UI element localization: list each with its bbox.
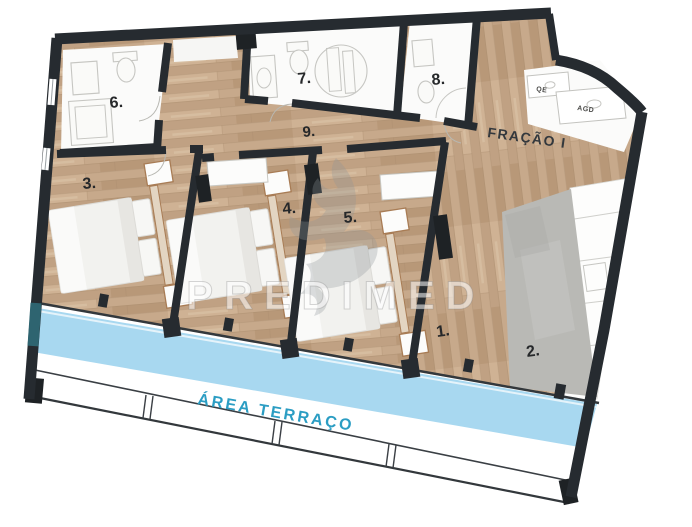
room-4-label: 4. — [282, 200, 297, 218]
accent-teal-wall-segment — [33, 303, 36, 346]
floor-plan-canvas: PREDIMED 3. 4. 5. 6. 7. 8. 9. 1. 2. FRAÇ… — [0, 0, 692, 527]
room-8-label: 8. — [431, 71, 446, 89]
room-2-label: 2. — [525, 342, 541, 361]
room-6-label: 6. — [109, 94, 124, 112]
room-7-label: 7. — [297, 70, 312, 88]
room-5-label: 5. — [343, 209, 358, 227]
watermark-text: PREDIMED — [186, 274, 485, 318]
entry-landing — [173, 36, 238, 62]
room-9-label: 9. — [302, 123, 316, 141]
wardrobe-room-5 — [380, 171, 440, 200]
wardrobe-room-4 — [207, 158, 268, 186]
room-1-label: 1. — [435, 322, 451, 341]
room-3-label: 3. — [82, 175, 97, 193]
floor-plan-drawing: PREDIMED 3. 4. 5. 6. 7. 8. 9. 1. 2. FRAÇ… — [0, 0, 692, 527]
